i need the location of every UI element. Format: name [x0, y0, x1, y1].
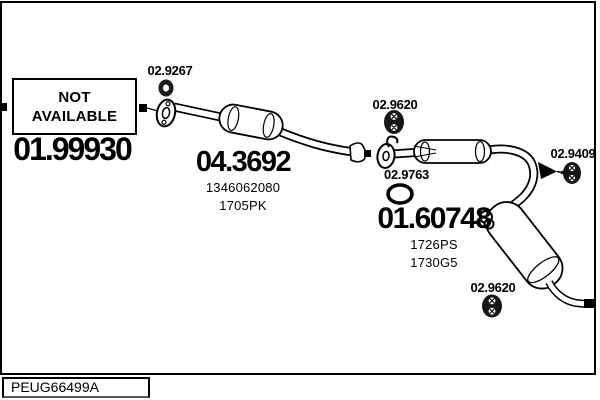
gasket-ring-icon — [388, 185, 412, 203]
rear-silencer-ref1: 1726PS — [366, 237, 502, 252]
front-flange — [154, 98, 177, 128]
not-available-line2: AVAILABLE — [32, 107, 117, 126]
tail-pipe — [549, 282, 594, 308]
joint-flange — [376, 143, 396, 169]
mount-ring-icon — [159, 80, 174, 97]
catalog-code-box: PEUG66499A — [2, 377, 150, 398]
exhaust-parts-diagram-page: NOT AVAILABLE 01.99930 02.9267 04.3692 1… — [0, 0, 600, 400]
catalytic-converter-oe-ref: 1346062080 — [182, 180, 304, 195]
pipe-flare-end — [350, 143, 371, 162]
part-number-rear-hanger: 02.9620 — [468, 280, 518, 295]
rear-silencer-ref2: 1730G5 — [366, 255, 502, 270]
arrow-pointer-icon — [538, 162, 564, 179]
not-available-line1: NOT — [58, 88, 90, 107]
part-number-rear-silencer: 01.60748 — [366, 203, 502, 234]
part-number-catalytic-converter: 04.3692 — [182, 147, 304, 177]
catalog-code: PEUG66499A — [11, 379, 99, 395]
part-number-front-mount-ring: 02.9267 — [145, 63, 195, 78]
hanger-hook — [387, 137, 397, 147]
not-available-box: NOT AVAILABLE — [12, 78, 137, 135]
rubber-hanger-icon-tail — [563, 162, 581, 184]
part-number-tail-hanger: 02.9409 — [549, 146, 597, 161]
catalytic-converter-alt-ref: 1705PK — [182, 198, 304, 213]
catalytic-converter-label-block: 04.3692 1346062080 1705PK — [182, 147, 304, 213]
centre-silencer-body — [414, 140, 491, 163]
part-number-centre-gasket: 02.9763 — [379, 167, 434, 182]
catalytic-converter-body — [217, 102, 285, 142]
rear-silencer-label-block: 01.60748 1726PS 1730G5 — [366, 203, 502, 270]
part-number-centre-hanger: 02.9620 — [370, 97, 420, 112]
rubber-hanger-icon-rear — [482, 295, 502, 318]
part-number-front-section: 01.99930 — [4, 131, 140, 168]
rubber-hanger-icon-centre — [384, 110, 404, 134]
